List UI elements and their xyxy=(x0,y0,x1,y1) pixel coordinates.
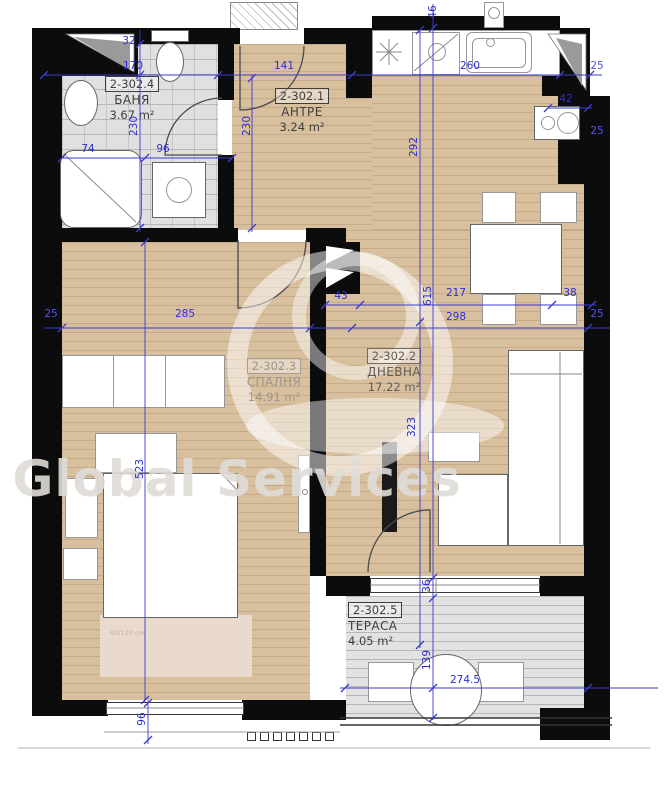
wardrobe-section xyxy=(113,355,166,408)
wall-hall-bottom xyxy=(306,228,346,242)
room-name: БАНЯ xyxy=(92,93,172,108)
dining-chair xyxy=(482,192,516,223)
column xyxy=(382,442,397,532)
washing-machine-drum xyxy=(166,177,192,203)
railing-post xyxy=(247,732,256,741)
terrace-chair xyxy=(368,662,414,702)
railing-post xyxy=(286,732,295,741)
room-id: 2-302.2 xyxy=(367,348,421,364)
entry-landing xyxy=(230,2,298,30)
wall-right-main xyxy=(584,96,610,708)
burner-small xyxy=(541,116,555,130)
room-id: 2-302.5 xyxy=(348,602,402,618)
dimension-label: 323 xyxy=(407,417,418,437)
dimension-label: 274.5 xyxy=(450,675,480,686)
wall-corner-block xyxy=(540,708,610,740)
room-area: 14.91 m² xyxy=(232,390,316,404)
dimension-label: 25 xyxy=(44,309,57,320)
dimension-label: 523 xyxy=(135,459,146,479)
floor-plan: 60/120 cm xyxy=(0,0,666,798)
dining-chair xyxy=(482,294,516,325)
bedroom-window xyxy=(106,702,244,715)
room-id: 2-302.4 xyxy=(105,76,159,92)
appliance-knob xyxy=(428,43,446,61)
wall-pier xyxy=(346,28,372,98)
dimension-label: 25 xyxy=(590,126,603,137)
dimension-label: 139 xyxy=(422,650,433,670)
wardrobe-section xyxy=(165,355,225,408)
rug-note: 60/120 cm xyxy=(110,629,145,637)
dimension-label: 43 xyxy=(334,291,347,302)
room-name: ТЕРАСА xyxy=(348,619,432,634)
dimension-label: 42 xyxy=(559,94,572,105)
room-label-living: 2-302.2 ДНЕВНА 17.22 m² xyxy=(352,348,436,395)
dining-table xyxy=(470,224,562,294)
room-label-bedroom: 2-302.3 СПАЛНЯ 14.91 m² xyxy=(232,358,316,405)
sink-faucet xyxy=(486,38,495,47)
room-area: 3.24 m² xyxy=(260,120,344,134)
sofa-chaise xyxy=(508,350,584,546)
bed xyxy=(103,473,238,618)
wall-bottom-left xyxy=(32,700,108,716)
railing-post xyxy=(260,732,269,741)
wall-terrace-right xyxy=(540,576,588,596)
wall-left xyxy=(32,28,62,712)
dimension-label: 298 xyxy=(446,312,466,323)
nightstand xyxy=(63,548,98,580)
dimension-label: 46 xyxy=(428,5,439,18)
room-area: 17.22 m² xyxy=(352,380,436,394)
dimension-label: 25 xyxy=(590,61,603,72)
dimension-label: 292 xyxy=(409,137,420,157)
room-name: АНТРЕ xyxy=(260,105,344,120)
dimension-label: 38 xyxy=(563,288,576,299)
dimension-label: 141 xyxy=(274,61,294,72)
dimension-label: 230 xyxy=(129,116,140,136)
shower-tray xyxy=(60,150,142,228)
room-area: 4.05 m² xyxy=(348,634,432,648)
nightstand xyxy=(65,478,98,538)
terrace-window xyxy=(370,578,540,593)
dimension-label: 170 xyxy=(123,61,143,72)
wall-terrace-left xyxy=(326,576,370,596)
toilet-cistern xyxy=(151,30,189,42)
dimension-label: 217 xyxy=(446,288,466,299)
wall-kitchen-top xyxy=(372,16,560,30)
railing-post xyxy=(273,732,282,741)
terrace-chair xyxy=(478,662,524,702)
dimension-label: 36 xyxy=(422,579,433,592)
railing-post xyxy=(325,732,334,741)
dimension-label: 25 xyxy=(590,309,603,320)
sofa-seat xyxy=(438,474,508,546)
wall-bath-bottom xyxy=(32,228,238,242)
dimension-label: 230 xyxy=(242,116,253,136)
sink-basin xyxy=(472,38,526,68)
dimension-label: 615 xyxy=(423,286,434,306)
dimension-label: 96 xyxy=(156,144,169,155)
dimension-label: 74 xyxy=(81,144,94,155)
bedroom-rug: 60/120 cm xyxy=(100,615,252,677)
dining-chair xyxy=(540,192,577,223)
room-id: 2-302.3 xyxy=(247,358,301,374)
wall-bath-right-1 xyxy=(218,44,234,100)
entry-floor xyxy=(232,44,346,230)
counter-top-icon-dot xyxy=(488,7,500,19)
burner-large xyxy=(557,112,579,134)
pocket-door xyxy=(298,455,310,533)
dimension-label: 32 xyxy=(122,36,135,47)
wall-shaft-mid xyxy=(322,242,360,294)
wall-bottom-mid xyxy=(242,700,346,720)
room-label-entry: 2-302.1 АНТРЕ 3.24 m² xyxy=(260,88,344,135)
railing-post xyxy=(299,732,308,741)
room-name: ДНЕВНА xyxy=(352,365,436,380)
room-name: СПАЛНЯ xyxy=(232,375,316,390)
dimension-label: 285 xyxy=(175,309,195,320)
dimension-label: 260 xyxy=(460,61,480,72)
corridor-floor xyxy=(346,98,372,230)
room-id: 2-302.1 xyxy=(275,88,329,104)
wardrobe-section xyxy=(62,355,114,408)
railing-post xyxy=(312,732,321,741)
coffee-table xyxy=(428,432,480,462)
dimension-label: 96 xyxy=(137,712,148,725)
room-label-terrace: 2-302.5 ТЕРАСА 4.05 m² xyxy=(348,602,432,649)
